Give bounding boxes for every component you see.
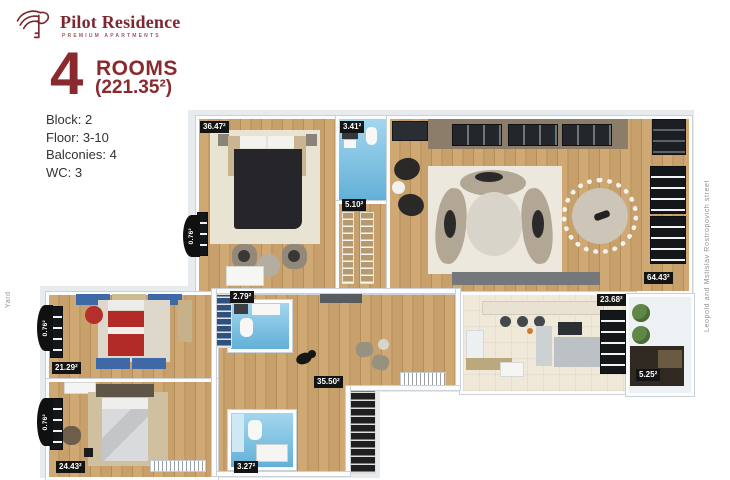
skylight-window xyxy=(508,124,558,146)
toilet xyxy=(366,127,377,145)
chair-cushion xyxy=(288,250,300,262)
bed-blanket-red xyxy=(108,334,144,356)
chair-cushion xyxy=(238,250,250,262)
toilet xyxy=(248,420,262,440)
room-label-balcony-bedroom-3: 0.76² xyxy=(42,414,49,430)
kitchen-window xyxy=(600,310,626,374)
bed-duvet xyxy=(234,149,302,229)
window xyxy=(650,166,686,214)
room-label-balcony-right: 5.25² xyxy=(636,369,660,381)
title-room-count: 4 xyxy=(50,44,83,104)
balcony-bedroom-3: 0.76² xyxy=(37,398,53,446)
detail-block: Block: 2 xyxy=(46,111,117,129)
armchair-brown xyxy=(62,426,81,445)
detail-wc: WC: 3 xyxy=(46,164,117,182)
pillow xyxy=(240,136,266,148)
sofa-cushion xyxy=(532,210,544,238)
title-total-area: (221.35²) xyxy=(95,77,172,99)
room-label-bath-lower: 3.27² xyxy=(234,461,258,473)
room-label-bedroom-2: 21.29² xyxy=(52,362,81,374)
brand-tagline: PREMIUM APARTMENTS xyxy=(62,33,161,39)
tv xyxy=(558,322,582,335)
plant xyxy=(632,304,650,322)
shower-tile xyxy=(232,414,244,452)
bed-sheet xyxy=(108,327,144,334)
wall xyxy=(346,386,350,476)
room-label-kitchen: 23.68² xyxy=(597,294,626,306)
side-table xyxy=(392,181,405,194)
bar-counter xyxy=(482,301,604,315)
room-label-bedroom-3: 24.43² xyxy=(56,461,85,473)
balcony-panel xyxy=(658,350,682,368)
plant xyxy=(632,326,650,344)
side-table xyxy=(84,448,93,457)
bath-counter xyxy=(252,304,280,315)
shoe-bench xyxy=(400,372,446,387)
coffee-table xyxy=(466,192,522,256)
fridge xyxy=(536,326,552,366)
bench-blue xyxy=(132,358,166,369)
street-label: Leopold and Mstislav Rostropovich street xyxy=(704,148,711,363)
wall xyxy=(212,289,216,476)
wall xyxy=(348,386,460,390)
brand-name: Pilot Residence xyxy=(60,12,180,33)
wardrobe-side xyxy=(178,300,192,342)
window xyxy=(392,121,428,141)
room-label-bath-top: 3.41² xyxy=(340,121,364,133)
sofa-cushion xyxy=(475,172,503,182)
room-label-bath-mid: 2.79² xyxy=(230,291,254,303)
bathtub xyxy=(256,444,288,462)
clothes-rack xyxy=(342,212,354,284)
hall-sideboard xyxy=(320,294,362,303)
room-label-master: 36.47² xyxy=(200,121,229,133)
pilot-logo-icon xyxy=(12,5,56,45)
headboard xyxy=(96,384,154,397)
hall-table xyxy=(378,339,389,350)
dresser xyxy=(226,266,264,286)
room-label-living: 64.43² xyxy=(644,272,673,284)
bed-duvet-grey xyxy=(102,409,148,461)
room-label-balcony-bedroom-2: 0.76² xyxy=(42,320,49,336)
balcony-bedroom-2: 0.76² xyxy=(37,305,53,351)
wall xyxy=(212,472,350,476)
skylight-window xyxy=(452,124,502,146)
skylight-window xyxy=(562,124,612,146)
media-console xyxy=(452,272,600,285)
red-chair xyxy=(85,306,103,324)
bar-stool xyxy=(500,316,511,327)
pillow xyxy=(108,300,144,310)
wall xyxy=(456,289,460,390)
hall-closet xyxy=(348,390,376,474)
pillow xyxy=(102,398,148,409)
bed-blanket-red xyxy=(108,311,144,327)
apartment-details: Block: 2 Floor: 3-10 Balconies: 4 WC: 3 xyxy=(46,111,117,181)
toilet xyxy=(240,318,253,337)
window xyxy=(650,216,686,264)
sofa-cushion xyxy=(444,210,456,238)
yard-label: Yard xyxy=(5,268,12,308)
small-table xyxy=(500,362,524,377)
bench-blue xyxy=(96,358,130,369)
bath-vanity xyxy=(234,304,248,314)
sink xyxy=(344,140,356,148)
kitchen-sofa xyxy=(554,337,602,367)
corner-window xyxy=(652,119,686,155)
room-label-balcony-master: 0.76² xyxy=(188,228,195,244)
room-label-hallway: 35.50² xyxy=(314,376,343,388)
balcony-master: 0.76² xyxy=(183,215,200,257)
dog-head xyxy=(308,350,316,358)
bar-stool xyxy=(517,316,528,327)
nightstand xyxy=(306,134,317,146)
fruit-bowl xyxy=(527,328,533,334)
pillow xyxy=(268,136,294,148)
room-label-wardrobe: 5.10² xyxy=(342,199,366,211)
detail-floor: Floor: 3-10 xyxy=(46,129,117,147)
detail-balconies: Balconies: 4 xyxy=(46,146,117,164)
floorplan-page: Pilot Residence PREMIUM APARTMENTS 4 ROO… xyxy=(0,0,730,480)
clothes-rack xyxy=(360,212,374,284)
radiator xyxy=(150,460,206,472)
